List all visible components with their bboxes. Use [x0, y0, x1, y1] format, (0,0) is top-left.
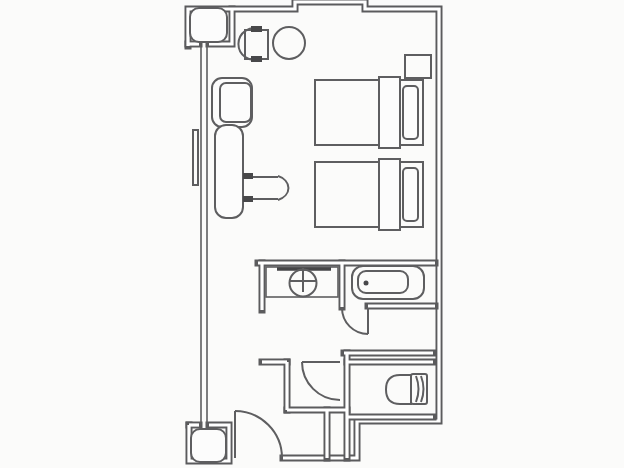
lounge-chair [212, 78, 252, 127]
desk-chair-arm-top [243, 173, 253, 179]
armchair-arm-top [251, 26, 262, 32]
twin-bed-1 [315, 77, 423, 148]
pillar-top [190, 8, 227, 42]
desk-side-panel [193, 130, 198, 185]
bathroom-door [342, 308, 368, 334]
pillar-bottom [191, 429, 226, 462]
outer-walls [188, 2, 439, 461]
floor-plan-page [0, 0, 624, 468]
floor-plan-drawing [0, 0, 624, 468]
toilet [386, 374, 427, 404]
round-table [273, 27, 305, 59]
twin-bed-2 [315, 159, 423, 230]
pillow-2 [403, 168, 418, 221]
interior-walls [258, 263, 435, 458]
desk-chair [243, 173, 288, 202]
bathtub-drain [364, 281, 369, 286]
nightstand [405, 55, 431, 78]
window [201, 46, 207, 425]
armchair [238, 26, 268, 62]
bed-1-blanket-fold [379, 77, 400, 148]
bed-2-blanket-fold [379, 159, 400, 230]
washroom-door [302, 362, 340, 400]
bathtub [352, 266, 424, 299]
desk-chair-arm-bottom [243, 196, 253, 202]
washbasin [290, 268, 317, 297]
toilet-bowl [386, 375, 411, 404]
entry-door [235, 411, 282, 458]
pillow-1 [403, 86, 418, 139]
armchair-arm-bottom [251, 56, 262, 62]
